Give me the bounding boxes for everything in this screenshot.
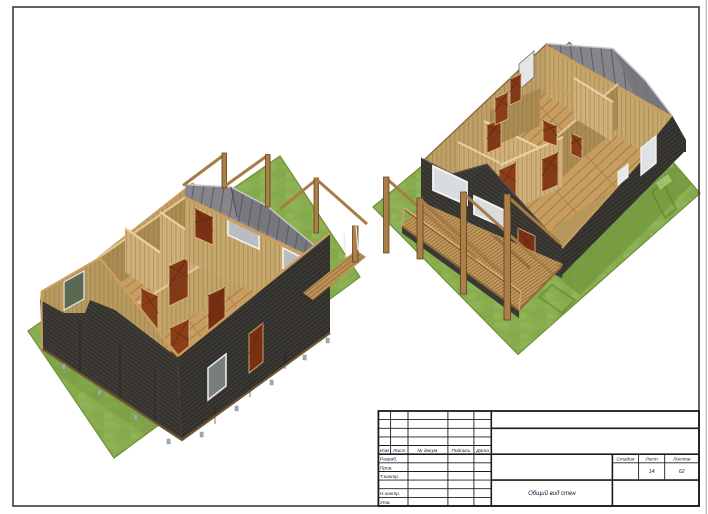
svg-text:Лист: Лист [392,448,405,454]
svg-text:Дата: Дата [475,448,489,454]
svg-text:Изм: Изм [380,448,390,454]
svg-text:Пров.: Пров. [380,465,393,471]
svg-text:62: 62 [679,469,685,475]
svg-text:14: 14 [649,469,655,475]
svg-text:Общий вид стен: Общий вид стен [528,490,576,497]
svg-text:Утв.: Утв. [380,500,391,506]
svg-text:Лист: Лист [644,457,657,463]
svg-text:№ докум.: № докум. [417,448,438,454]
svg-text:Н.контр.: Н.контр. [380,491,400,497]
svg-text:Разраб.: Разраб. [380,457,397,463]
svg-text:Листов: Листов [672,457,691,463]
svg-text:Стадия: Стадия [617,457,635,463]
svg-text:Т.контр.: Т.контр. [380,474,399,480]
svg-text:Подпись: Подпись [451,448,471,454]
